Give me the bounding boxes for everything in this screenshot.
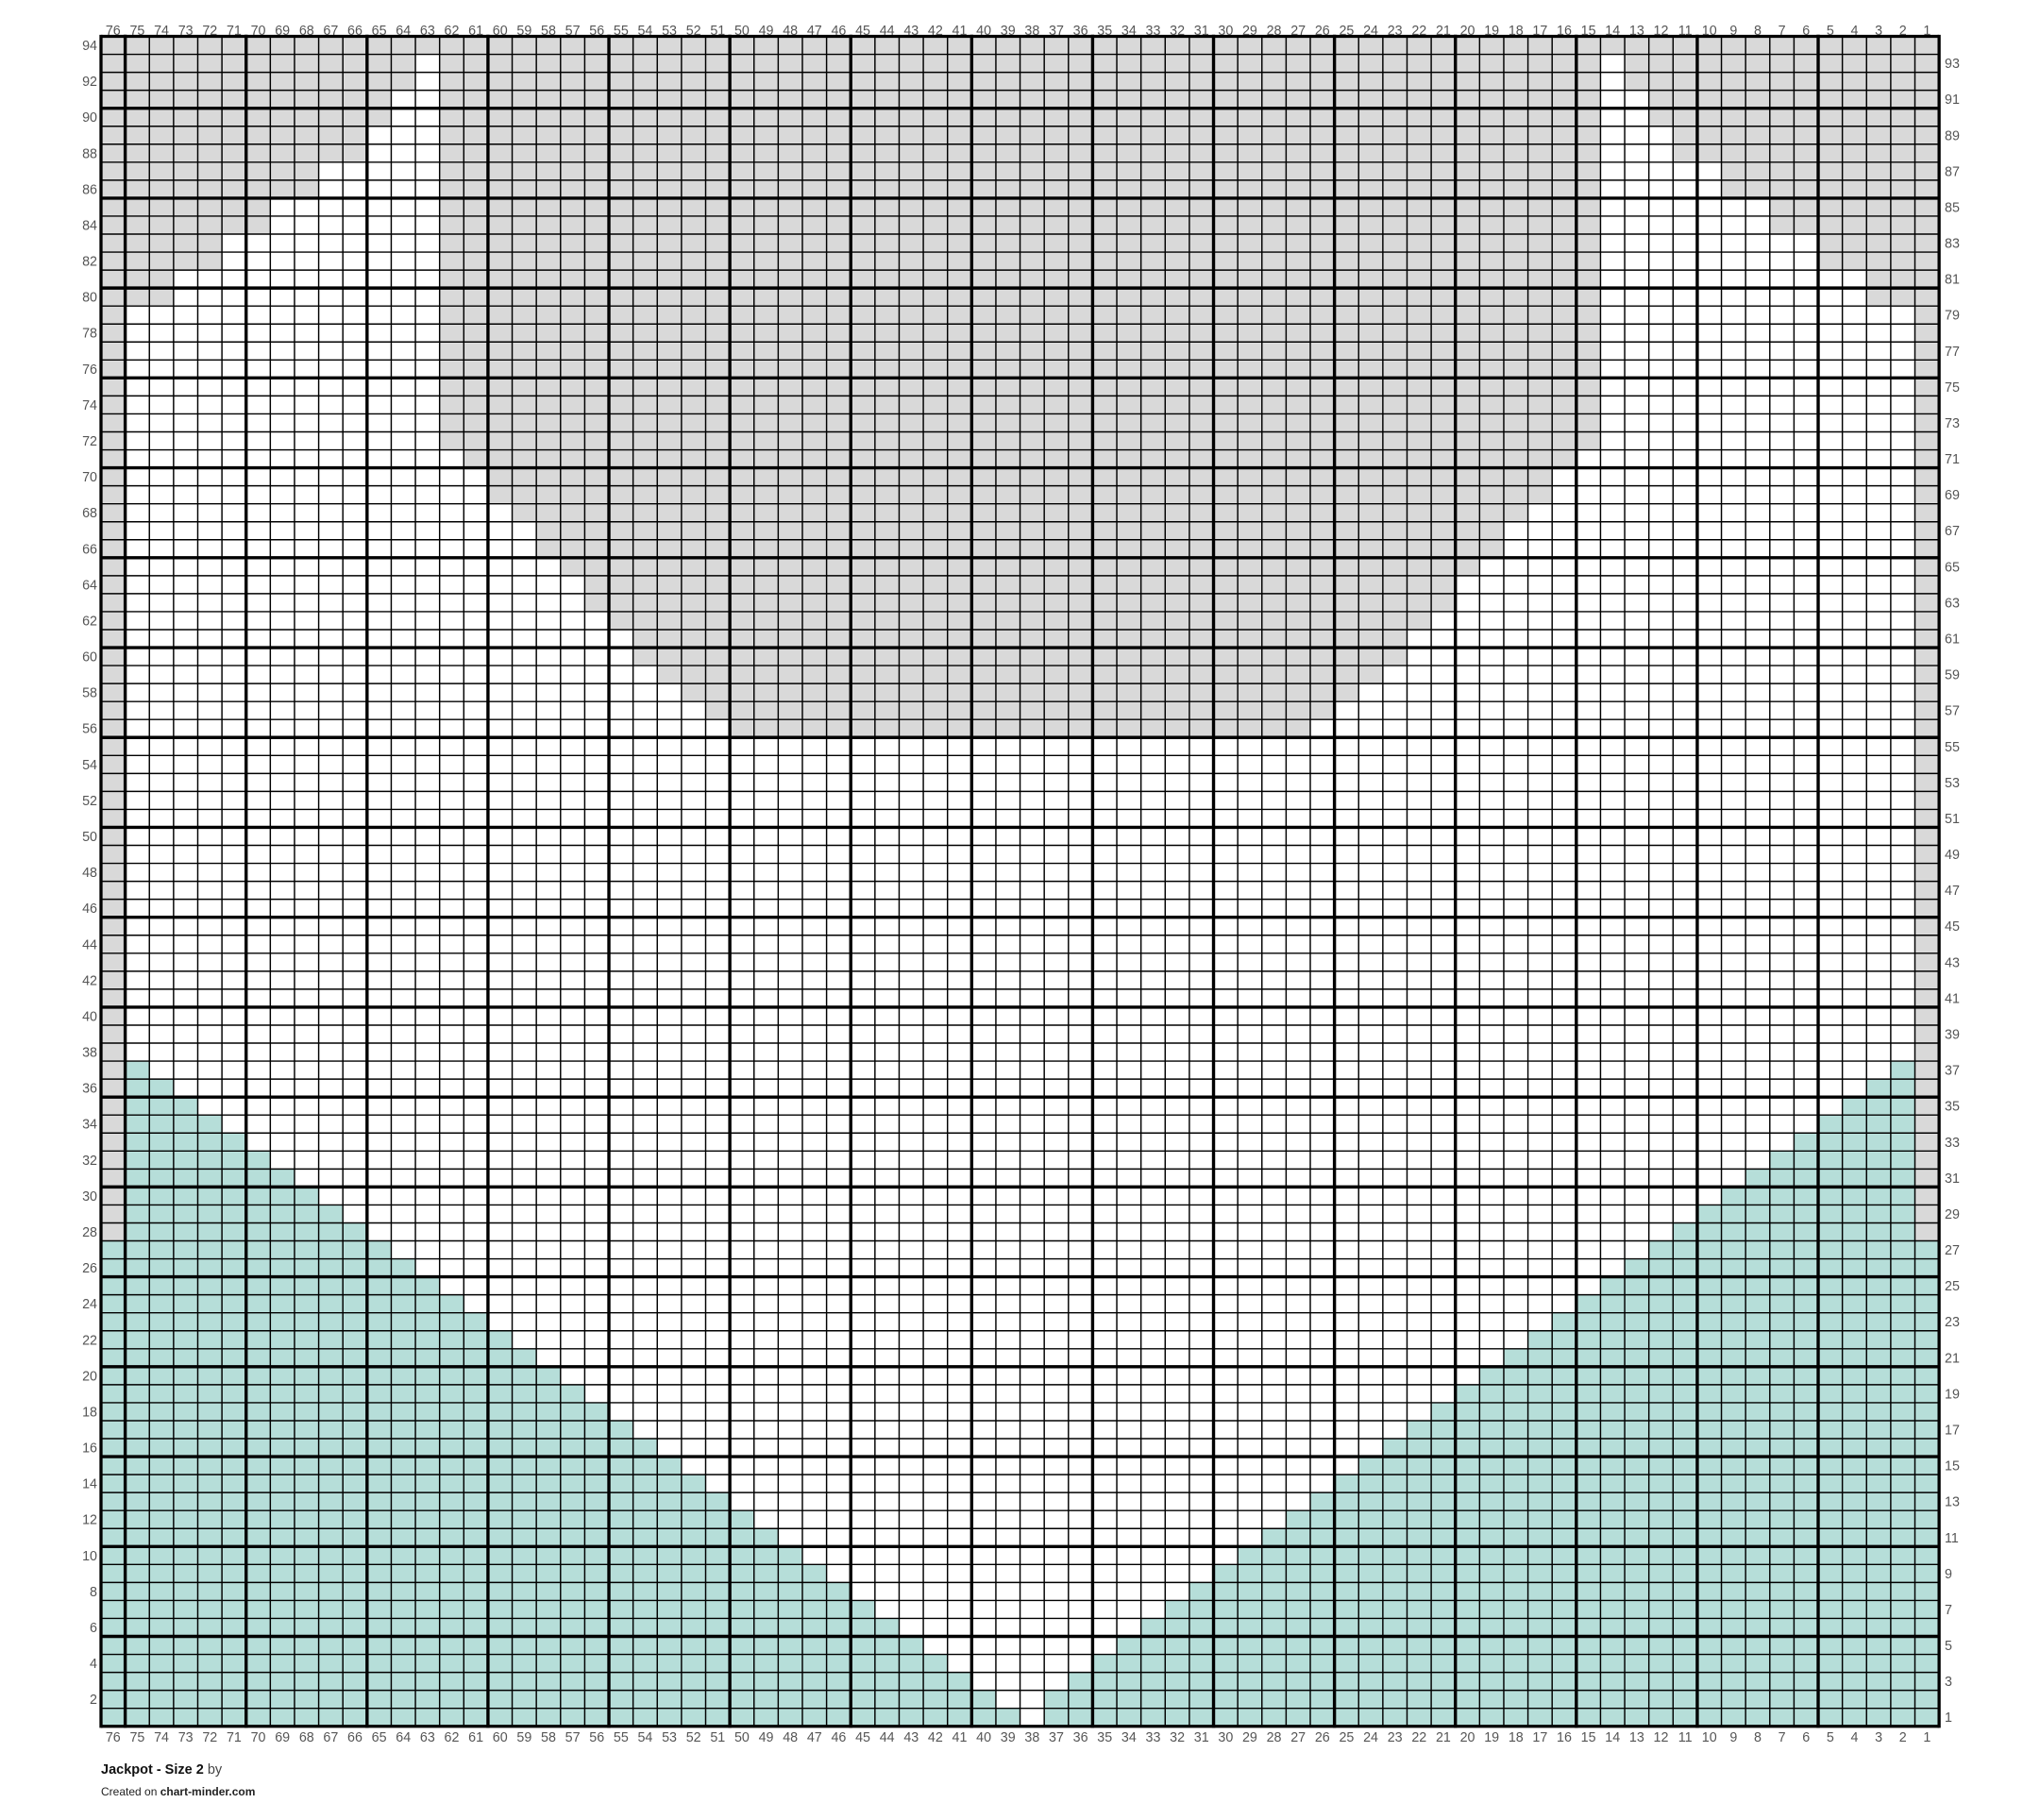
svg-text:29: 29 bbox=[1242, 24, 1257, 39]
svg-text:41: 41 bbox=[1945, 991, 1960, 1006]
svg-text:22: 22 bbox=[82, 1333, 97, 1348]
svg-text:19: 19 bbox=[1484, 1730, 1499, 1745]
svg-text:57: 57 bbox=[1945, 704, 1960, 719]
svg-text:25: 25 bbox=[1339, 1730, 1354, 1745]
svg-text:52: 52 bbox=[82, 794, 97, 809]
svg-text:69: 69 bbox=[275, 1730, 290, 1745]
svg-text:29: 29 bbox=[1242, 1730, 1257, 1745]
svg-text:45: 45 bbox=[855, 1730, 870, 1745]
svg-text:62: 62 bbox=[445, 1730, 460, 1745]
svg-text:74: 74 bbox=[82, 398, 97, 413]
svg-text:70: 70 bbox=[82, 470, 97, 485]
svg-text:54: 54 bbox=[637, 1730, 652, 1745]
svg-text:33: 33 bbox=[1945, 1136, 1960, 1151]
svg-text:33: 33 bbox=[1146, 24, 1161, 39]
svg-text:13: 13 bbox=[1629, 24, 1644, 39]
svg-text:66: 66 bbox=[347, 24, 362, 39]
svg-text:68: 68 bbox=[299, 1730, 314, 1745]
svg-text:71: 71 bbox=[227, 24, 242, 39]
svg-text:63: 63 bbox=[420, 1730, 435, 1745]
svg-text:32: 32 bbox=[1170, 24, 1185, 39]
svg-text:80: 80 bbox=[82, 291, 97, 306]
svg-text:53: 53 bbox=[662, 24, 677, 39]
svg-text:24: 24 bbox=[1363, 1730, 1378, 1745]
svg-text:73: 73 bbox=[178, 24, 194, 39]
svg-text:12: 12 bbox=[82, 1513, 97, 1528]
svg-text:79: 79 bbox=[1945, 309, 1960, 324]
svg-text:90: 90 bbox=[82, 110, 97, 126]
svg-text:39: 39 bbox=[1945, 1028, 1960, 1043]
svg-text:31: 31 bbox=[1194, 24, 1209, 39]
svg-text:20: 20 bbox=[1460, 1730, 1475, 1745]
svg-text:47: 47 bbox=[1945, 884, 1960, 899]
svg-text:21: 21 bbox=[1945, 1351, 1960, 1366]
svg-text:20: 20 bbox=[82, 1369, 97, 1384]
svg-text:63: 63 bbox=[420, 24, 435, 39]
svg-text:26: 26 bbox=[1315, 1730, 1330, 1745]
svg-text:44: 44 bbox=[880, 24, 895, 39]
svg-text:4: 4 bbox=[1850, 24, 1858, 39]
svg-text:58: 58 bbox=[541, 24, 556, 39]
svg-text:28: 28 bbox=[1267, 1730, 1282, 1745]
svg-text:1: 1 bbox=[1923, 24, 1930, 39]
svg-text:46: 46 bbox=[831, 24, 846, 39]
svg-text:56: 56 bbox=[589, 24, 604, 39]
svg-text:40: 40 bbox=[82, 1009, 97, 1024]
svg-text:Created on chart-minder.com: Created on chart-minder.com bbox=[101, 1785, 255, 1798]
svg-text:54: 54 bbox=[82, 758, 97, 773]
svg-text:12: 12 bbox=[1654, 1730, 1669, 1745]
svg-text:16: 16 bbox=[82, 1441, 97, 1457]
svg-text:35: 35 bbox=[1097, 1730, 1112, 1745]
svg-text:28: 28 bbox=[82, 1225, 97, 1240]
svg-text:25: 25 bbox=[1339, 24, 1354, 39]
svg-text:58: 58 bbox=[82, 686, 97, 701]
svg-text:88: 88 bbox=[82, 146, 97, 161]
svg-text:17: 17 bbox=[1532, 1730, 1547, 1745]
svg-text:84: 84 bbox=[82, 218, 97, 233]
svg-text:72: 72 bbox=[82, 434, 97, 449]
svg-text:49: 49 bbox=[759, 24, 774, 39]
svg-text:23: 23 bbox=[1388, 1730, 1403, 1745]
svg-text:78: 78 bbox=[82, 327, 97, 342]
svg-text:55: 55 bbox=[1945, 740, 1960, 755]
svg-text:30: 30 bbox=[1218, 24, 1233, 39]
svg-text:77: 77 bbox=[1945, 345, 1960, 360]
svg-text:57: 57 bbox=[565, 1730, 581, 1745]
svg-text:74: 74 bbox=[154, 1730, 169, 1745]
svg-text:63: 63 bbox=[1945, 596, 1960, 611]
svg-text:13: 13 bbox=[1629, 1730, 1644, 1745]
svg-text:9: 9 bbox=[1729, 24, 1737, 39]
svg-text:58: 58 bbox=[541, 1730, 556, 1745]
svg-text:41: 41 bbox=[953, 24, 968, 39]
svg-text:72: 72 bbox=[202, 24, 217, 39]
svg-text:10: 10 bbox=[1702, 24, 1717, 39]
svg-text:36: 36 bbox=[1073, 24, 1088, 39]
svg-text:30: 30 bbox=[82, 1189, 97, 1205]
svg-text:27: 27 bbox=[1290, 24, 1306, 39]
svg-text:45: 45 bbox=[855, 24, 870, 39]
svg-text:1: 1 bbox=[1923, 1730, 1930, 1745]
svg-text:67: 67 bbox=[1945, 524, 1960, 539]
svg-text:76: 76 bbox=[82, 362, 97, 378]
svg-text:14: 14 bbox=[1605, 1730, 1620, 1745]
svg-text:94: 94 bbox=[82, 39, 97, 54]
svg-text:25: 25 bbox=[1945, 1279, 1960, 1294]
svg-text:70: 70 bbox=[251, 24, 266, 39]
svg-text:6: 6 bbox=[90, 1621, 97, 1636]
svg-text:73: 73 bbox=[178, 1730, 194, 1745]
svg-text:Jackpot - Size 2 by: Jackpot - Size 2 by bbox=[101, 1762, 223, 1778]
svg-text:15: 15 bbox=[1581, 24, 1596, 39]
svg-text:44: 44 bbox=[82, 937, 97, 952]
svg-text:16: 16 bbox=[1557, 24, 1572, 39]
svg-text:34: 34 bbox=[1121, 1730, 1137, 1745]
svg-text:70: 70 bbox=[251, 1730, 266, 1745]
svg-text:19: 19 bbox=[1484, 24, 1499, 39]
svg-text:60: 60 bbox=[493, 1730, 508, 1745]
svg-text:69: 69 bbox=[275, 24, 290, 39]
svg-text:65: 65 bbox=[1945, 560, 1960, 575]
svg-text:50: 50 bbox=[82, 830, 97, 845]
svg-text:42: 42 bbox=[82, 973, 97, 988]
svg-text:49: 49 bbox=[759, 1730, 774, 1745]
svg-text:75: 75 bbox=[1945, 380, 1960, 396]
svg-text:53: 53 bbox=[662, 1730, 677, 1745]
svg-text:39: 39 bbox=[1001, 24, 1016, 39]
svg-text:13: 13 bbox=[1945, 1495, 1960, 1510]
svg-text:20: 20 bbox=[1460, 24, 1475, 39]
svg-text:93: 93 bbox=[1945, 57, 1960, 72]
svg-text:91: 91 bbox=[1945, 93, 1960, 108]
svg-text:54: 54 bbox=[637, 24, 652, 39]
svg-text:75: 75 bbox=[129, 24, 144, 39]
svg-text:71: 71 bbox=[1945, 452, 1960, 467]
svg-text:52: 52 bbox=[686, 24, 701, 39]
svg-text:56: 56 bbox=[82, 722, 97, 737]
svg-text:51: 51 bbox=[1945, 812, 1960, 827]
svg-text:10: 10 bbox=[82, 1549, 97, 1564]
svg-text:65: 65 bbox=[372, 1730, 387, 1745]
svg-text:9: 9 bbox=[1945, 1567, 1952, 1582]
svg-text:18: 18 bbox=[1509, 1730, 1524, 1745]
svg-text:48: 48 bbox=[783, 1730, 798, 1745]
svg-text:72: 72 bbox=[202, 1730, 217, 1745]
svg-text:71: 71 bbox=[227, 1730, 242, 1745]
svg-text:23: 23 bbox=[1388, 24, 1403, 39]
svg-text:69: 69 bbox=[1945, 488, 1960, 503]
svg-text:66: 66 bbox=[347, 1730, 362, 1745]
svg-text:22: 22 bbox=[1411, 24, 1426, 39]
svg-text:42: 42 bbox=[928, 1730, 943, 1745]
svg-text:45: 45 bbox=[1945, 919, 1960, 935]
svg-text:65: 65 bbox=[372, 24, 387, 39]
svg-text:3: 3 bbox=[1945, 1675, 1952, 1690]
svg-text:38: 38 bbox=[82, 1046, 97, 1061]
svg-text:67: 67 bbox=[323, 1730, 338, 1745]
svg-text:4: 4 bbox=[90, 1657, 97, 1672]
svg-text:21: 21 bbox=[1436, 1730, 1451, 1745]
svg-text:51: 51 bbox=[710, 1730, 725, 1745]
svg-text:46: 46 bbox=[831, 1730, 846, 1745]
svg-text:43: 43 bbox=[903, 24, 919, 39]
svg-text:61: 61 bbox=[1945, 632, 1960, 648]
svg-text:6: 6 bbox=[1802, 24, 1810, 39]
svg-text:2: 2 bbox=[90, 1693, 97, 1708]
svg-text:19: 19 bbox=[1945, 1387, 1960, 1402]
svg-text:55: 55 bbox=[614, 24, 629, 39]
svg-text:86: 86 bbox=[82, 182, 97, 197]
svg-text:47: 47 bbox=[807, 24, 822, 39]
svg-text:82: 82 bbox=[82, 255, 97, 270]
svg-text:35: 35 bbox=[1097, 24, 1112, 39]
svg-text:83: 83 bbox=[1945, 237, 1960, 252]
svg-text:50: 50 bbox=[734, 24, 750, 39]
svg-text:37: 37 bbox=[1945, 1064, 1960, 1079]
svg-text:11: 11 bbox=[1678, 24, 1693, 39]
svg-text:24: 24 bbox=[82, 1297, 97, 1312]
svg-text:74: 74 bbox=[154, 24, 169, 39]
svg-text:31: 31 bbox=[1194, 1730, 1209, 1745]
svg-text:16: 16 bbox=[1557, 1730, 1572, 1745]
svg-text:76: 76 bbox=[106, 24, 121, 39]
svg-text:40: 40 bbox=[976, 1730, 991, 1745]
svg-text:26: 26 bbox=[82, 1261, 97, 1276]
svg-text:38: 38 bbox=[1024, 1730, 1039, 1745]
svg-text:51: 51 bbox=[710, 24, 725, 39]
svg-text:50: 50 bbox=[734, 1730, 750, 1745]
svg-text:87: 87 bbox=[1945, 164, 1960, 179]
svg-text:11: 11 bbox=[1678, 1730, 1693, 1745]
svg-text:41: 41 bbox=[953, 1730, 968, 1745]
svg-text:62: 62 bbox=[445, 24, 460, 39]
svg-text:37: 37 bbox=[1049, 24, 1064, 39]
svg-text:92: 92 bbox=[82, 75, 97, 90]
svg-text:1: 1 bbox=[1945, 1710, 1952, 1726]
svg-text:30: 30 bbox=[1218, 1730, 1233, 1745]
svg-text:8: 8 bbox=[90, 1585, 97, 1600]
svg-text:60: 60 bbox=[82, 650, 97, 666]
svg-text:5: 5 bbox=[1827, 24, 1834, 39]
svg-text:8: 8 bbox=[1754, 1730, 1762, 1745]
svg-text:22: 22 bbox=[1411, 1730, 1426, 1745]
svg-text:27: 27 bbox=[1945, 1243, 1960, 1258]
svg-text:2: 2 bbox=[1899, 24, 1907, 39]
svg-text:39: 39 bbox=[1001, 1730, 1016, 1745]
svg-text:48: 48 bbox=[783, 24, 798, 39]
svg-text:59: 59 bbox=[516, 24, 531, 39]
svg-text:47: 47 bbox=[807, 1730, 822, 1745]
svg-text:23: 23 bbox=[1945, 1315, 1960, 1330]
svg-text:5: 5 bbox=[1945, 1639, 1952, 1654]
svg-text:36: 36 bbox=[1073, 1730, 1088, 1745]
svg-text:7: 7 bbox=[1945, 1603, 1952, 1618]
svg-text:18: 18 bbox=[82, 1405, 97, 1420]
svg-text:3: 3 bbox=[1875, 1730, 1882, 1745]
svg-text:48: 48 bbox=[82, 866, 97, 881]
svg-text:52: 52 bbox=[686, 1730, 701, 1745]
svg-text:21: 21 bbox=[1436, 24, 1451, 39]
svg-text:68: 68 bbox=[82, 506, 97, 521]
svg-text:18: 18 bbox=[1509, 24, 1524, 39]
svg-text:6: 6 bbox=[1802, 1730, 1810, 1745]
svg-text:29: 29 bbox=[1945, 1207, 1960, 1222]
svg-text:12: 12 bbox=[1654, 24, 1669, 39]
svg-text:3: 3 bbox=[1875, 24, 1882, 39]
svg-text:7: 7 bbox=[1779, 1730, 1786, 1745]
svg-text:43: 43 bbox=[903, 1730, 919, 1745]
svg-text:34: 34 bbox=[82, 1118, 97, 1133]
svg-text:44: 44 bbox=[880, 1730, 895, 1745]
svg-text:35: 35 bbox=[1945, 1100, 1960, 1115]
svg-text:17: 17 bbox=[1532, 24, 1547, 39]
svg-text:32: 32 bbox=[82, 1154, 97, 1169]
svg-text:38: 38 bbox=[1024, 24, 1039, 39]
svg-text:2: 2 bbox=[1899, 1730, 1907, 1745]
svg-text:55: 55 bbox=[614, 1730, 629, 1745]
svg-text:42: 42 bbox=[928, 24, 943, 39]
svg-text:46: 46 bbox=[82, 902, 97, 917]
svg-text:26: 26 bbox=[1315, 24, 1330, 39]
svg-text:64: 64 bbox=[82, 578, 97, 593]
svg-text:49: 49 bbox=[1945, 848, 1960, 863]
svg-text:14: 14 bbox=[1605, 24, 1620, 39]
svg-text:5: 5 bbox=[1827, 1730, 1834, 1745]
svg-text:43: 43 bbox=[1945, 955, 1960, 970]
svg-text:17: 17 bbox=[1945, 1423, 1960, 1438]
svg-text:4: 4 bbox=[1850, 1730, 1858, 1745]
svg-text:53: 53 bbox=[1945, 776, 1960, 791]
svg-text:73: 73 bbox=[1945, 416, 1960, 431]
svg-text:89: 89 bbox=[1945, 128, 1960, 143]
svg-text:10: 10 bbox=[1702, 1730, 1717, 1745]
svg-text:59: 59 bbox=[1945, 668, 1960, 683]
svg-text:64: 64 bbox=[396, 1730, 411, 1745]
svg-text:56: 56 bbox=[589, 1730, 604, 1745]
svg-text:76: 76 bbox=[106, 1730, 121, 1745]
svg-text:31: 31 bbox=[1945, 1171, 1960, 1187]
svg-text:68: 68 bbox=[299, 24, 314, 39]
svg-text:85: 85 bbox=[1945, 200, 1960, 215]
svg-text:7: 7 bbox=[1779, 24, 1786, 39]
svg-text:60: 60 bbox=[493, 24, 508, 39]
svg-text:27: 27 bbox=[1290, 1730, 1306, 1745]
svg-text:32: 32 bbox=[1170, 1730, 1185, 1745]
svg-text:37: 37 bbox=[1049, 1730, 1064, 1745]
svg-text:14: 14 bbox=[82, 1477, 97, 1492]
svg-text:34: 34 bbox=[1121, 24, 1137, 39]
svg-text:40: 40 bbox=[976, 24, 991, 39]
svg-text:11: 11 bbox=[1945, 1531, 1959, 1546]
svg-text:67: 67 bbox=[323, 24, 338, 39]
svg-text:64: 64 bbox=[396, 24, 411, 39]
svg-text:15: 15 bbox=[1945, 1459, 1960, 1475]
svg-text:8: 8 bbox=[1754, 24, 1762, 39]
svg-text:61: 61 bbox=[468, 1730, 483, 1745]
svg-text:62: 62 bbox=[82, 614, 97, 629]
svg-text:61: 61 bbox=[468, 24, 483, 39]
svg-text:28: 28 bbox=[1267, 24, 1282, 39]
svg-text:9: 9 bbox=[1729, 1730, 1737, 1745]
svg-text:33: 33 bbox=[1146, 1730, 1161, 1745]
svg-text:75: 75 bbox=[129, 1730, 144, 1745]
svg-text:15: 15 bbox=[1581, 1730, 1596, 1745]
svg-text:81: 81 bbox=[1945, 273, 1960, 288]
svg-text:59: 59 bbox=[516, 1730, 531, 1745]
svg-text:24: 24 bbox=[1363, 24, 1378, 39]
svg-text:57: 57 bbox=[565, 24, 581, 39]
svg-text:36: 36 bbox=[82, 1082, 97, 1097]
svg-text:66: 66 bbox=[82, 542, 97, 557]
